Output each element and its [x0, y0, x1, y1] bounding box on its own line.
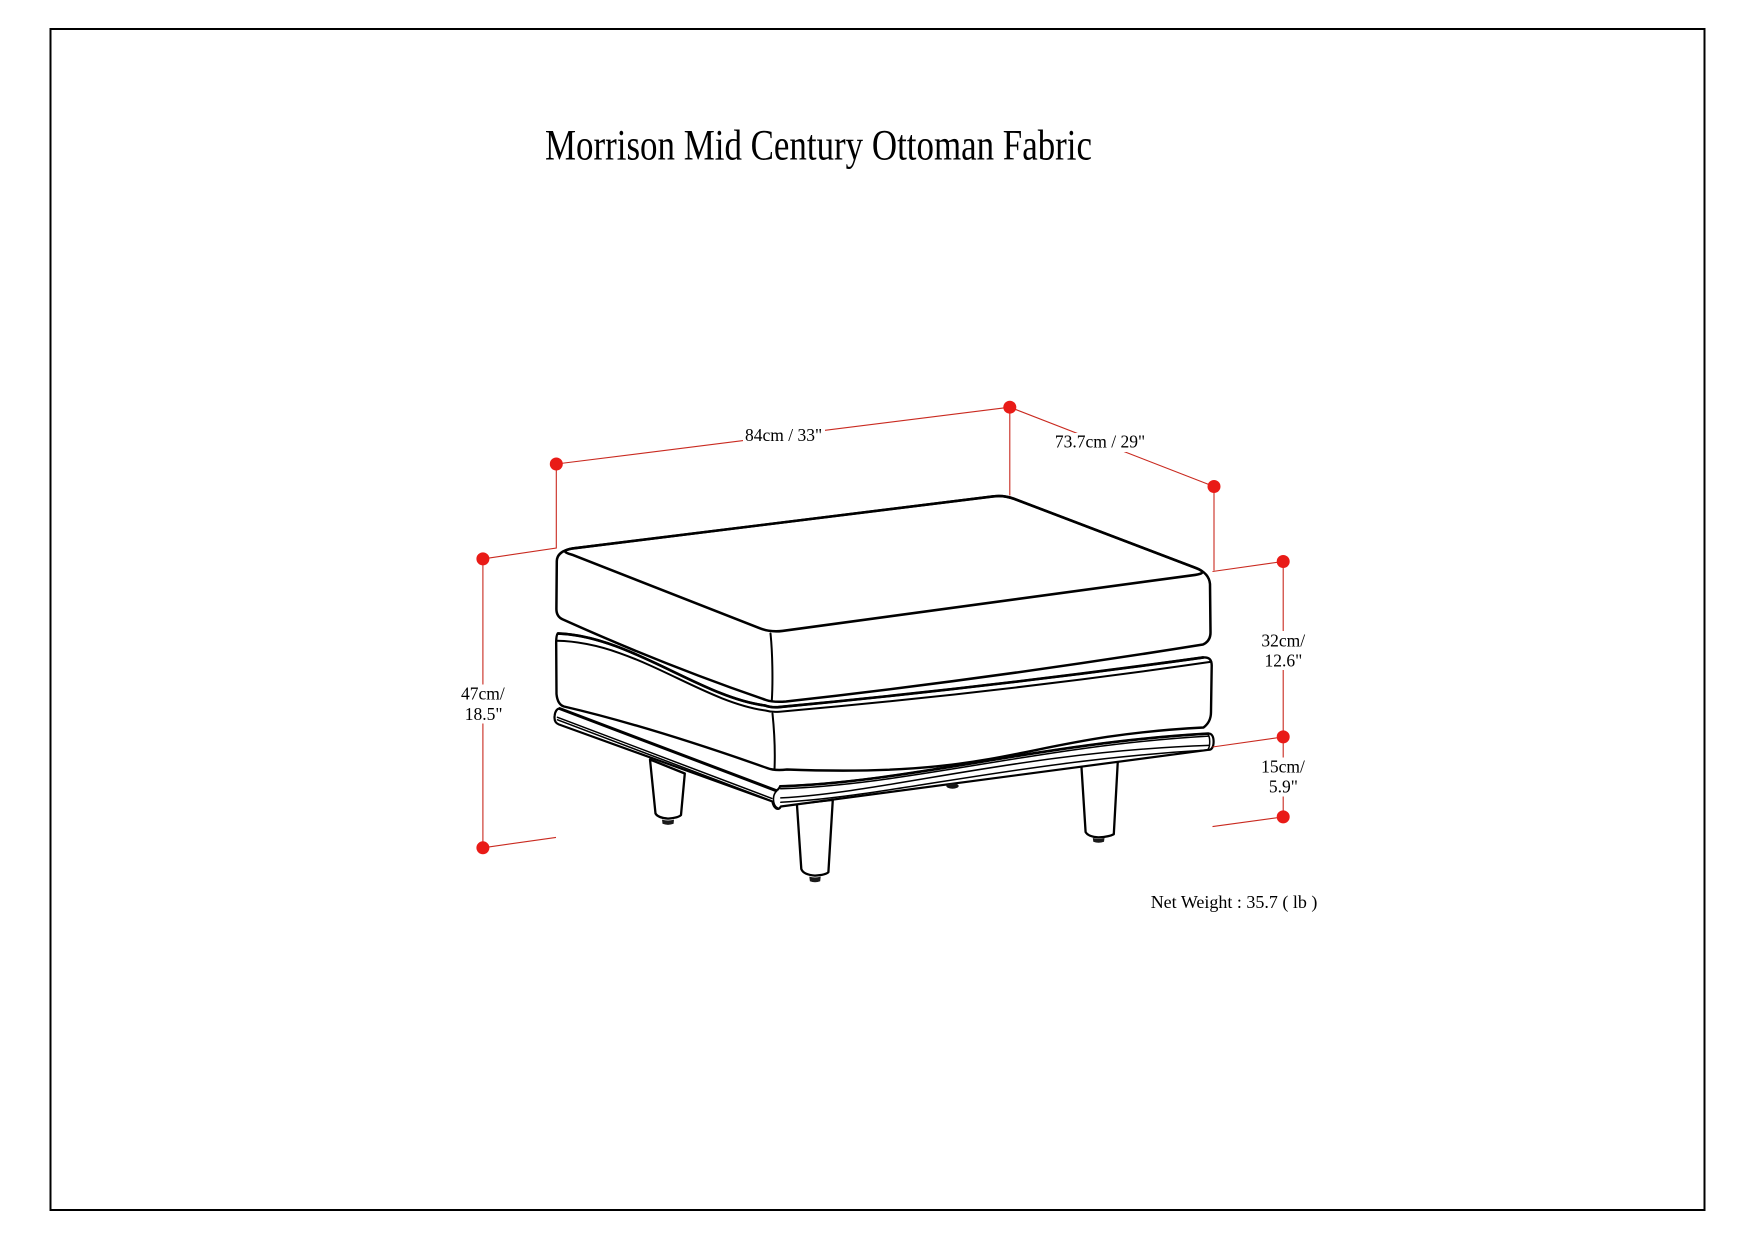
svg-text:Net Weight : 35.7 ( lb ): Net Weight : 35.7 ( lb ) — [1151, 892, 1318, 913]
svg-text:18.5": 18.5" — [465, 704, 503, 724]
svg-text:84cm / 33": 84cm / 33" — [745, 425, 822, 445]
svg-text:Morrison Mid Century Ottoman F: Morrison Mid Century Ottoman Fabric — [545, 123, 1092, 170]
svg-text:5.9": 5.9" — [1269, 777, 1298, 797]
svg-text:12.6": 12.6" — [1265, 650, 1303, 670]
svg-text:47cm/: 47cm/ — [461, 684, 505, 704]
svg-text:15cm/: 15cm/ — [1261, 757, 1305, 777]
svg-text:32cm/: 32cm/ — [1261, 630, 1305, 650]
svg-text:73.7cm / 29": 73.7cm / 29" — [1055, 432, 1145, 452]
